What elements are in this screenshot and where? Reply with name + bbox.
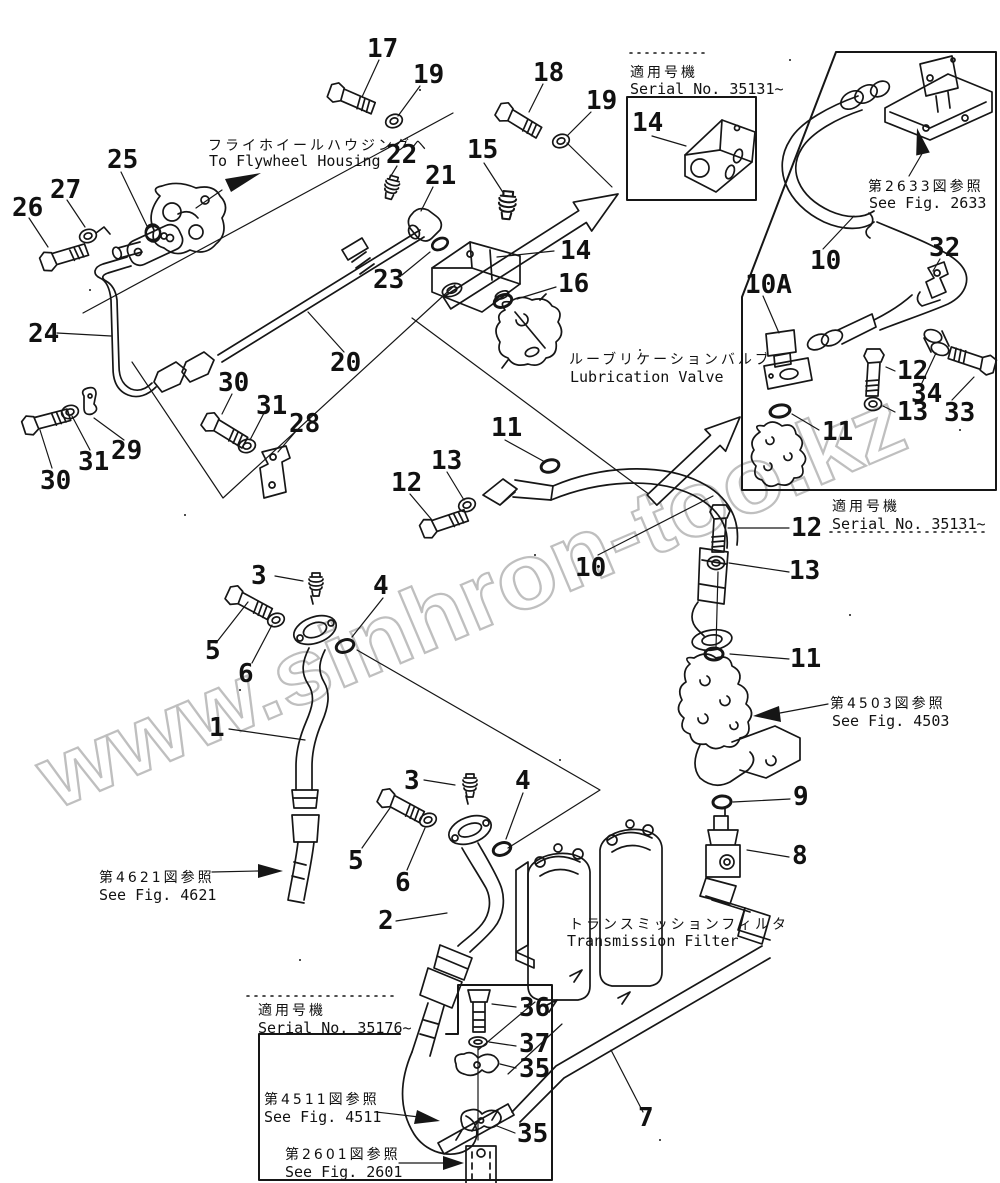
part-number-11: 11	[790, 644, 821, 674]
part-number-11: 11	[822, 417, 853, 447]
watermark: www.sinhron-too.kz	[22, 371, 919, 829]
pipe-2	[403, 796, 504, 1154]
washer-27	[78, 228, 98, 245]
flywheel-housing-part	[151, 183, 225, 253]
part-number-21: 21	[425, 161, 456, 191]
part-number-1: 1	[209, 713, 225, 743]
tube-fig2601	[466, 1146, 496, 1183]
part-number-30: 30	[40, 466, 71, 496]
part-number-5: 5	[205, 636, 221, 666]
part-number-22: 22	[386, 140, 417, 170]
serial-right-en: Serial No. 35131~	[832, 515, 986, 533]
part-number-26: 26	[12, 193, 43, 223]
bolt-5	[224, 583, 275, 621]
parts-diagram-canvas: www.sinhron-too.kz	[0, 0, 1000, 1183]
part-number-25: 25	[107, 145, 138, 175]
part-number-31: 31	[256, 391, 287, 421]
breather-3	[309, 573, 323, 596]
valve-14-in-box	[685, 120, 755, 192]
bolt-12	[418, 504, 469, 540]
part-number-12: 12	[391, 468, 422, 498]
to-flywheel-arrow-line	[196, 190, 222, 208]
part-number-30: 30	[218, 368, 249, 398]
part-number-10A: 10A	[745, 270, 792, 300]
part-number-6: 6	[238, 659, 254, 689]
fig2601-en: See Fig. 2601	[285, 1163, 402, 1181]
transmission-filter-jp: トランスミッションフィルタ	[569, 917, 789, 933]
part-number-5: 5	[348, 846, 364, 876]
part-number-13: 13	[789, 556, 820, 586]
pipe-24	[95, 257, 214, 397]
part-number-6: 6	[395, 868, 411, 898]
valve-fig4503	[678, 654, 800, 785]
fig2633-jp: 第2633図参照	[868, 178, 984, 195]
part-number-7: 7	[638, 1103, 654, 1133]
lubrication-valve-jp: ルーブリケーションバルブ	[569, 351, 772, 368]
part-number-29: 29	[111, 436, 142, 466]
part-number-13: 13	[897, 397, 928, 427]
part-number-8: 8	[792, 841, 808, 871]
fig2601-jp: 第2601図参照	[285, 1146, 401, 1163]
bolt-30	[200, 410, 251, 450]
part-number-23: 23	[373, 265, 404, 295]
washer-31	[60, 404, 80, 421]
part-number-4: 4	[515, 766, 531, 796]
part-number-11: 11	[491, 413, 522, 443]
to-flywheel-arrow-icon	[225, 173, 261, 192]
part-number-27: 27	[50, 175, 81, 205]
hose-10-assy	[782, 78, 966, 353]
serial-top-en: Serial No. 35131~	[630, 80, 784, 98]
serial-top-jp: 適用号機	[630, 64, 698, 81]
part-number-35: 35	[517, 1119, 548, 1149]
part-number-10: 10	[810, 246, 841, 276]
bracket-28	[260, 446, 290, 498]
fig4511-en: See Fig. 4511	[264, 1108, 381, 1126]
o-ring-23	[430, 236, 449, 253]
part-number-19: 19	[413, 60, 444, 90]
fig4621-en: See Fig. 4621	[99, 886, 216, 904]
part-number-12: 12	[791, 513, 822, 543]
assembly-axis-line	[716, 572, 718, 648]
part-number-15: 15	[467, 135, 498, 165]
watermark-text: www.sinhron-too.kz	[22, 371, 919, 829]
solenoid-bracket-fig2633	[885, 56, 992, 140]
part-number-24: 24	[28, 319, 59, 349]
bolt-36	[468, 990, 490, 1032]
part-number-9: 9	[793, 782, 809, 812]
part-number-31: 31	[78, 447, 109, 477]
fig4503-en: See Fig. 4503	[832, 712, 949, 730]
washer-19	[384, 112, 404, 130]
flywheel-note-en: To Flywheel Housing	[209, 152, 381, 170]
part-number-10: 10	[575, 553, 606, 583]
part-number-18: 18	[533, 58, 564, 88]
parts-diagram-page: www.sinhron-too.kz	[0, 0, 1000, 1183]
fig4503-jp: 第4503図参照	[830, 695, 946, 712]
clamp-35	[455, 1053, 499, 1076]
part-number-35: 35	[519, 1054, 550, 1084]
part-number-3: 3	[251, 561, 267, 591]
fig2633-en: See Fig. 2633	[869, 194, 986, 212]
part-number-36: 36	[519, 993, 550, 1023]
part-number-19: 19	[586, 86, 617, 116]
part-number-13: 13	[431, 446, 462, 476]
serial-bottom-en: Serial No. 35176~	[258, 1019, 412, 1037]
serial-right-jp: 適用号機	[832, 498, 900, 515]
part-number-28: 28	[289, 409, 320, 439]
elbow-21	[407, 209, 442, 241]
washer-37	[469, 1037, 487, 1047]
o-ring-9	[713, 795, 732, 809]
plug-22	[382, 175, 401, 201]
part-number-14: 14	[632, 108, 663, 138]
part-number-16: 16	[558, 269, 589, 299]
transmission-filter-en: Transmission Filter	[567, 932, 739, 950]
part-number-20: 20	[330, 348, 361, 378]
serial-bottom-jp: 適用号機	[258, 1002, 326, 1019]
clamp-32	[917, 262, 948, 306]
bolt-18	[494, 100, 545, 140]
part-number-14: 14	[560, 236, 591, 266]
part-number-4: 4	[373, 571, 389, 601]
lubrication-valve-en: Lubrication Valve	[570, 368, 724, 386]
breather-3	[463, 774, 477, 797]
clamp-29	[83, 388, 97, 415]
fig4511-jp: 第4511図参照	[264, 1091, 380, 1108]
part-number-32: 32	[929, 233, 960, 263]
part-number-3: 3	[404, 766, 420, 796]
part-number-2: 2	[378, 906, 394, 936]
part-number-33: 33	[944, 398, 975, 428]
fig4621-jp: 第4621図参照	[99, 869, 215, 886]
plug-15	[498, 191, 517, 220]
bolt-33	[947, 345, 998, 376]
o-ring-4	[491, 840, 512, 857]
part-number-17: 17	[367, 34, 398, 64]
bolt-17	[326, 81, 377, 116]
